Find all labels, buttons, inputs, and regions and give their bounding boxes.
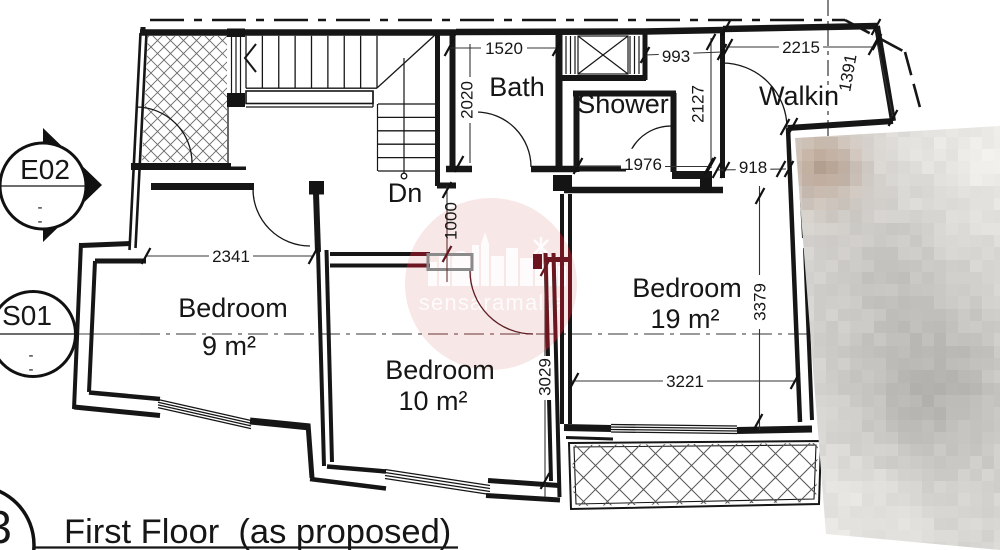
svg-text:19 m²: 19 m² xyxy=(650,304,719,334)
svg-text:Dn: Dn xyxy=(388,178,423,208)
svg-text:1976: 1976 xyxy=(624,155,662,174)
svg-text:Bedroom: Bedroom xyxy=(385,355,495,385)
svg-text:E02: E02 xyxy=(20,154,70,185)
svg-text:2127: 2127 xyxy=(688,85,707,123)
svg-text:First Floor (as proposed): First Floor (as proposed) xyxy=(64,513,451,550)
svg-text:-: - xyxy=(29,361,34,378)
svg-text:993: 993 xyxy=(662,47,690,66)
svg-text:2341: 2341 xyxy=(212,247,250,266)
svg-text:S01: S01 xyxy=(2,300,52,331)
svg-text:9 m²: 9 m² xyxy=(202,331,256,361)
svg-text:1391: 1391 xyxy=(835,53,860,94)
svg-text:3029: 3029 xyxy=(535,358,554,396)
svg-text:Bedroom: Bedroom xyxy=(178,293,288,323)
svg-text:2020: 2020 xyxy=(457,81,476,119)
svg-text:1000: 1000 xyxy=(441,202,460,240)
svg-text:-: - xyxy=(38,213,43,230)
svg-text:1520: 1520 xyxy=(485,39,523,58)
svg-text:10 m²: 10 m² xyxy=(398,386,467,416)
svg-text:Walkin: Walkin xyxy=(759,81,839,111)
svg-text:3221: 3221 xyxy=(666,372,704,391)
svg-text:918: 918 xyxy=(739,158,767,177)
svg-text:Bath: Bath xyxy=(489,72,545,102)
svg-text:2215: 2215 xyxy=(782,38,820,57)
svg-text:Shower: Shower xyxy=(577,89,669,119)
svg-text:3: 3 xyxy=(0,501,12,550)
svg-text:3379: 3379 xyxy=(750,283,769,321)
svg-text:Bedroom: Bedroom xyxy=(632,273,742,303)
